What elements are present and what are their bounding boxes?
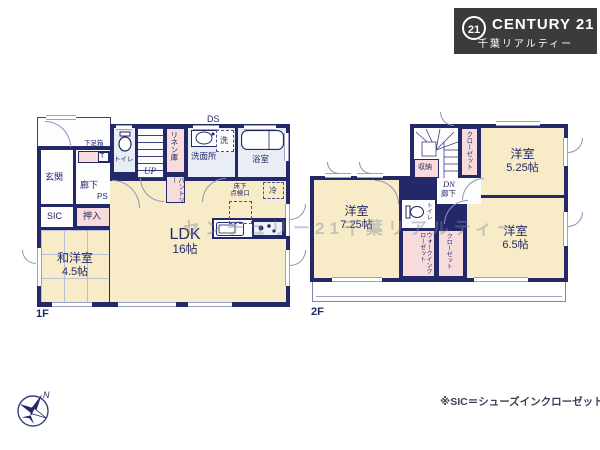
bathtub-icon	[241, 130, 284, 150]
rouka-label: 廊下	[80, 180, 98, 190]
closet-bed1-label: クローゼット	[464, 131, 471, 175]
logo-brand-text: CENTURY 21	[492, 16, 595, 33]
ldk-size: 16帖	[150, 243, 220, 257]
window	[284, 133, 289, 161]
watermark-text: センチュリー21千葉リアルティー	[183, 214, 519, 239]
floor1-label: 1F	[36, 308, 49, 321]
hatch-label-2: 点検口	[224, 190, 256, 197]
window	[52, 302, 92, 307]
bed3-size: 6.5帖	[467, 239, 564, 252]
washitsu-name: 和洋室	[41, 252, 109, 266]
shutter-arc	[22, 250, 36, 264]
compass-icon: N	[10, 386, 58, 434]
bed1-size: 5.25帖	[481, 162, 564, 175]
fridge-label: 冷	[269, 186, 277, 195]
bath-label: 浴室	[252, 155, 269, 165]
storage-label: 収納	[418, 164, 432, 172]
closet-bed3-label: クローゼット	[445, 233, 451, 275]
balcony	[312, 282, 566, 302]
door-arc	[568, 212, 583, 227]
door-arc	[568, 138, 583, 153]
window	[496, 121, 540, 126]
balcony-inner-line	[316, 296, 562, 297]
compass-n-label: N	[43, 390, 50, 400]
window	[474, 277, 528, 282]
ds-label: DS	[207, 114, 220, 124]
sanitary-label: 洗面所	[191, 152, 217, 162]
floor-plan-page: { "logo": { "mark": "21", "brand": "CENT…	[0, 0, 600, 450]
logo-sub-text: 千葉リアルティー	[454, 35, 597, 50]
sic-note: ※SIC＝シューズインクローゼット	[440, 396, 600, 408]
door-arc	[290, 250, 306, 266]
toilet-label-1f: トイレ	[114, 156, 134, 163]
bed1-name: 洋室	[481, 148, 564, 162]
t-label: T	[100, 153, 104, 161]
washitsu-size: 4.5帖	[41, 266, 109, 279]
window	[116, 125, 132, 130]
rouka-label-2f: 廊下	[441, 190, 456, 199]
washer-label: 洗	[220, 136, 228, 145]
getabako-label: 下足箱	[84, 140, 104, 147]
window	[118, 302, 176, 307]
window	[188, 302, 232, 307]
genkan-label: 玄関	[45, 172, 63, 182]
oshiire-label: 押入	[83, 211, 101, 221]
sic-label: SIC	[47, 211, 62, 221]
century21-logo: 21 CENTURY 21 千葉リアルティー	[454, 8, 597, 54]
window	[244, 125, 276, 130]
floor2-label: 2F	[311, 306, 324, 319]
window	[332, 277, 382, 282]
pantry-label: パントリー	[169, 177, 183, 203]
porch-window	[46, 115, 76, 120]
up-label: UP	[144, 166, 156, 176]
ps-label: PS	[97, 192, 108, 201]
linen-label: リネン庫	[170, 131, 178, 171]
toilet-icon-1f	[117, 131, 133, 153]
